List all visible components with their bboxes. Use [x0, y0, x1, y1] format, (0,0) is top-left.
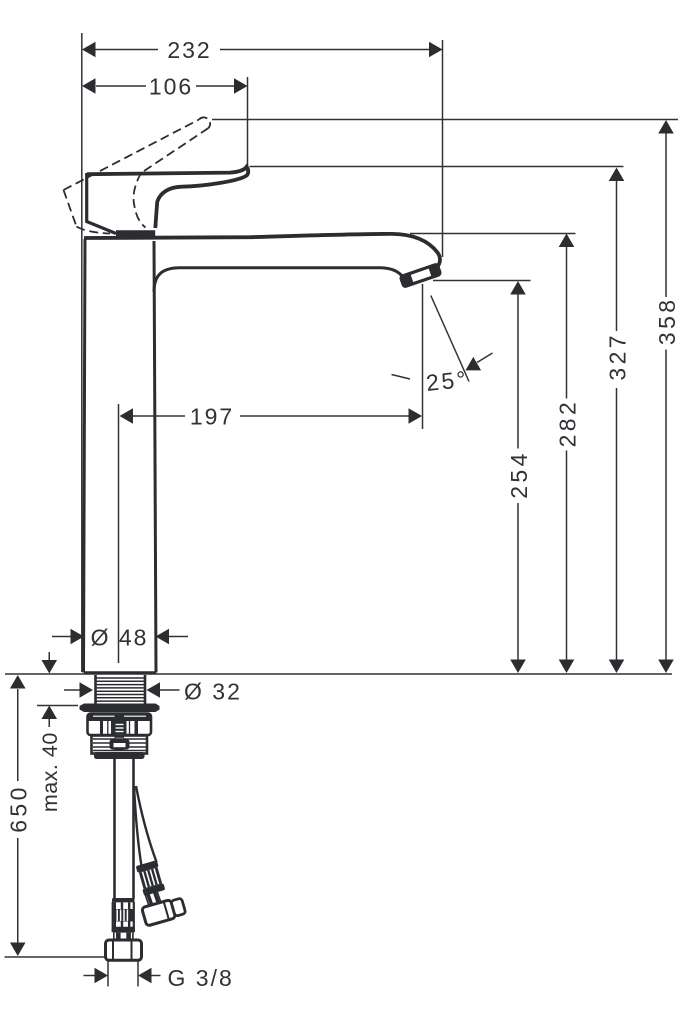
- svg-text:25°: 25°: [425, 366, 470, 396]
- svg-text:254: 254: [506, 450, 532, 499]
- svg-text:282: 282: [554, 399, 580, 448]
- svg-text:650: 650: [6, 784, 32, 833]
- svg-text:197: 197: [190, 404, 234, 430]
- svg-text:Ø 32: Ø 32: [184, 679, 242, 705]
- svg-text:327: 327: [604, 332, 630, 381]
- svg-text:max. 40: max. 40: [38, 732, 62, 812]
- svg-text:232: 232: [167, 37, 211, 63]
- svg-text:Ø 48: Ø 48: [91, 625, 149, 651]
- svg-text:G 3/8: G 3/8: [168, 965, 234, 991]
- svg-text:358: 358: [654, 297, 680, 346]
- svg-text:106: 106: [149, 74, 193, 100]
